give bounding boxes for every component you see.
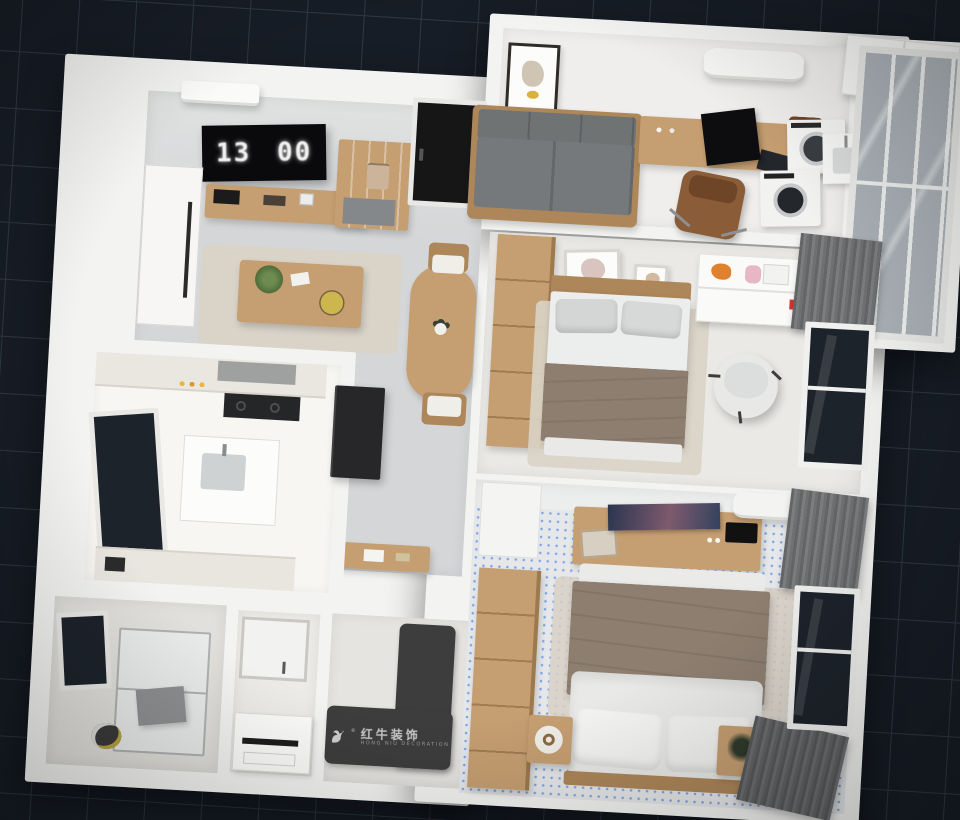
kitchen-window[interactable] — [88, 408, 168, 562]
dining-chair-bottom[interactable] — [421, 392, 467, 426]
bathroom-window[interactable] — [56, 610, 112, 690]
small-appliance — [105, 557, 126, 572]
tv-flip-clock-text: 13 00 — [202, 124, 327, 182]
air-conditioner-living[interactable] — [181, 80, 260, 106]
console-speaker — [299, 193, 314, 206]
cooktop[interactable] — [223, 393, 300, 421]
shelf-coat-rack[interactable] — [334, 139, 413, 231]
closet-door-handle — [183, 202, 192, 298]
console-black-box — [213, 189, 240, 204]
pink-lamp — [745, 265, 762, 284]
kitchen-counter-bottom[interactable] — [94, 546, 296, 591]
desk-pad — [363, 549, 384, 562]
vanity-sink-line — [243, 752, 296, 767]
knob — [715, 538, 720, 543]
bull-logo-icon — [328, 727, 346, 745]
curtain-bedroom-middle[interactable] — [791, 233, 883, 337]
knob — [707, 538, 712, 543]
kitchen-island-sink[interactable] — [179, 435, 280, 526]
dining-chair-top[interactable] — [428, 242, 470, 272]
pillow — [555, 299, 617, 333]
burner — [236, 401, 247, 412]
storage-box-gray — [342, 197, 395, 226]
wall-tv[interactable]: 13 00 — [202, 124, 327, 182]
book-white — [290, 272, 310, 287]
dining-table[interactable] — [405, 263, 478, 402]
fireplace-slot — [725, 522, 758, 543]
caster — [738, 411, 742, 423]
dryer-panel — [764, 173, 794, 178]
faucet — [222, 444, 227, 456]
entry-door-handle — [419, 149, 424, 161]
fridge-black[interactable] — [330, 385, 385, 480]
dryer-drum — [773, 183, 807, 217]
wc-mirror-window[interactable] — [239, 616, 310, 682]
range-hood[interactable] — [217, 361, 296, 385]
vanity-dark-strip — [242, 738, 298, 747]
sofa-seat — [473, 137, 635, 216]
potted-plant — [254, 265, 284, 295]
office-chair-brown[interactable] — [672, 168, 747, 241]
console-tray — [263, 195, 286, 206]
pillow — [620, 300, 683, 339]
sink-basin — [200, 453, 246, 491]
coffee-table[interactable] — [237, 260, 364, 329]
desk-item — [396, 553, 410, 562]
chair-seat — [432, 254, 465, 274]
window-bedroom-middle[interactable] — [797, 321, 875, 471]
art-dot — [527, 90, 539, 99]
dresser-master[interactable] — [572, 506, 762, 571]
table-vase — [434, 323, 447, 336]
chair-seat — [723, 361, 769, 399]
desktop-monitor[interactable] — [701, 108, 761, 166]
caster — [708, 374, 720, 378]
hanging-bag — [366, 163, 389, 190]
sofa-gray[interactable] — [467, 104, 643, 227]
faucet — [844, 136, 847, 148]
side-desk-south[interactable] — [333, 541, 430, 572]
pillow — [572, 708, 665, 772]
condiment-jars — [177, 378, 208, 390]
fruit-plate — [317, 288, 347, 318]
apartment-plan[interactable]: 13 00 — [14, 0, 960, 820]
blanket — [540, 363, 688, 449]
desk-cups — [654, 125, 683, 137]
room-kitchen[interactable] — [69, 337, 356, 608]
registered-mark: ® — [351, 728, 356, 734]
dryer[interactable] — [760, 170, 821, 227]
washer-panel — [791, 123, 821, 128]
floor-lamp-head[interactable] — [136, 686, 187, 726]
window-master[interactable] — [787, 585, 861, 732]
glazing-transom — [856, 180, 948, 191]
burner — [270, 403, 281, 414]
closet-door-left[interactable] — [136, 164, 203, 327]
window-glare — [804, 334, 837, 454]
render-viewport[interactable]: 13 00 — [0, 0, 960, 820]
chair-back — [687, 174, 738, 205]
brand-watermark: ® 红牛装饰 HONG NIU DECORATION — [328, 727, 450, 748]
wc-vanity[interactable] — [232, 712, 313, 774]
door-leaf-master[interactable] — [478, 482, 542, 559]
round-tray — [534, 725, 564, 755]
photo-frame-flat — [580, 528, 618, 558]
faucet — [282, 662, 286, 674]
goldfish-ornament — [711, 263, 732, 280]
air-conditioner-study[interactable] — [703, 47, 805, 83]
watermark-cn-text: 红牛装饰 — [361, 728, 450, 742]
art-sketch — [521, 60, 544, 87]
nightstand-master-left[interactable] — [526, 715, 573, 765]
window-glare — [793, 598, 823, 716]
white-organizer — [763, 264, 790, 285]
curtain-master-top[interactable] — [779, 488, 869, 597]
watermark-mat-horizontal: ® 红牛装饰 HONG NIU DECORATION — [324, 705, 453, 770]
chair-seat — [427, 395, 462, 417]
bed-middle[interactable] — [539, 275, 693, 467]
tv-master — [608, 503, 720, 531]
